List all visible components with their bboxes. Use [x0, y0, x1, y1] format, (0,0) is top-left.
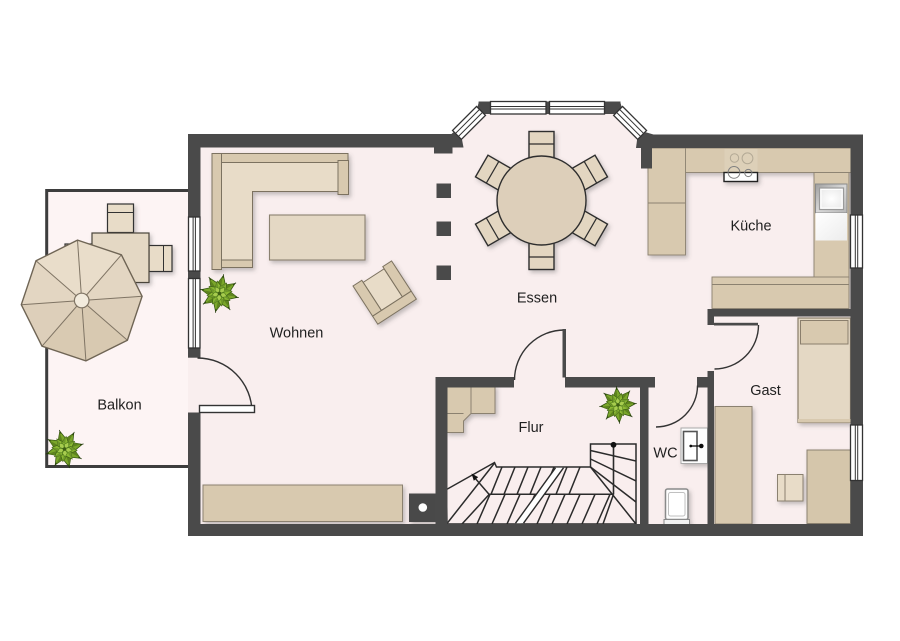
svg-text:Wohnen: Wohnen	[270, 326, 324, 342]
svg-text:WC: WC	[653, 446, 677, 462]
svg-text:Essen: Essen	[517, 291, 557, 307]
svg-text:Gast: Gast	[750, 383, 781, 399]
svg-text:Küche: Küche	[730, 219, 771, 235]
svg-text:Flur: Flur	[519, 420, 544, 436]
svg-text:Balkon: Balkon	[97, 398, 141, 414]
